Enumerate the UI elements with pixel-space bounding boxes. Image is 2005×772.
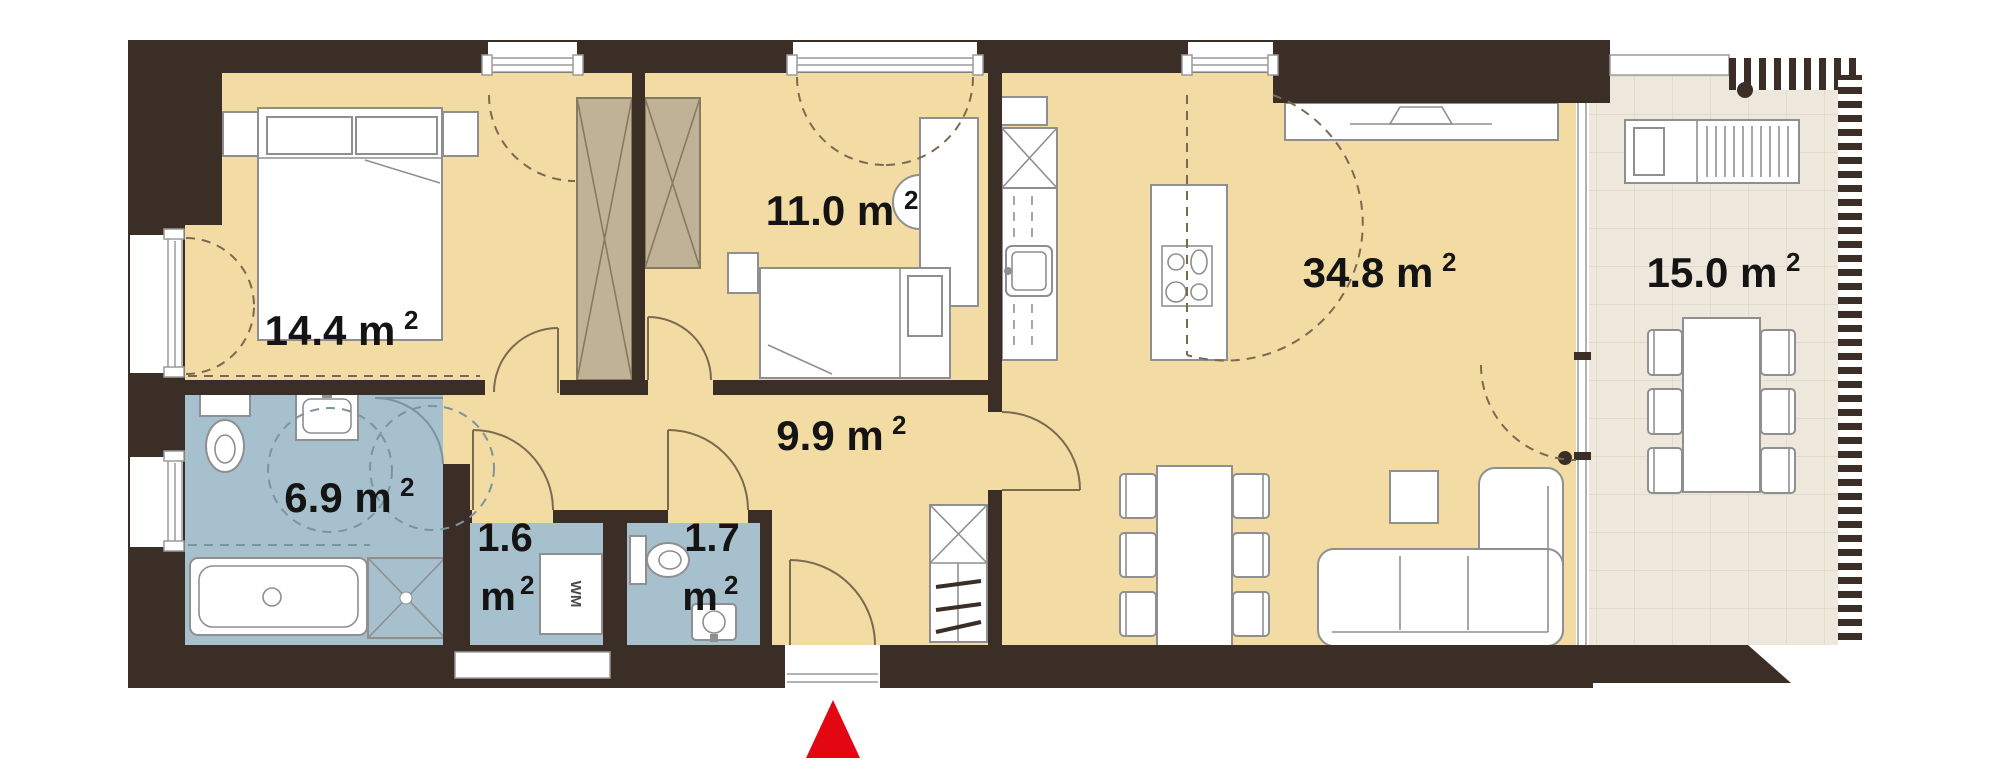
svg-text:2: 2 (520, 570, 534, 600)
shower (368, 558, 445, 638)
terrace-table (1648, 318, 1795, 493)
side-table (1390, 471, 1438, 523)
svg-text:2: 2 (400, 472, 414, 502)
washbasin (296, 388, 358, 440)
dining-table (1120, 466, 1269, 648)
wardrobe-bedroom (577, 98, 632, 380)
svg-text:2: 2 (1786, 247, 1800, 277)
entrance-marker (806, 700, 860, 758)
window-left-bedroom (130, 229, 184, 377)
svg-text:2: 2 (404, 305, 418, 335)
terrace-railing-right (1838, 75, 1862, 645)
kitchen-island (1151, 185, 1227, 360)
hall-cabinet (930, 505, 987, 642)
faucet-icon (1004, 267, 1012, 275)
sun-lounger (1625, 120, 1799, 183)
bathtub (190, 558, 367, 635)
label-bedroom: 14.4 m (265, 307, 396, 354)
wardrobe-child-room (645, 98, 700, 268)
floor-plan-canvas: 14.4 m 2 11.0 m 2 34.8 m 2 15.0 m 2 9.9 … (0, 0, 2005, 772)
svg-text:2: 2 (892, 410, 906, 440)
svg-text:2: 2 (724, 570, 738, 600)
label-wc: 1.7 (684, 516, 740, 560)
double-bed (223, 108, 478, 340)
window-left-bathroom (130, 451, 184, 551)
label-utility: 1.6 (477, 516, 533, 560)
svg-text:2: 2 (904, 185, 918, 215)
label-terrace: 15.0 m (1647, 249, 1778, 296)
wall-counter (1285, 103, 1558, 140)
window-top-living (1182, 42, 1278, 75)
label-hallway: 9.9 m (776, 412, 883, 459)
window-top-bedroom (482, 42, 583, 75)
svg-text:2: 2 (1442, 247, 1456, 277)
window-top-child-room (787, 42, 983, 75)
label-living: 34.8 m (1303, 249, 1434, 296)
entrance-threshold (785, 645, 880, 688)
single-bed (728, 253, 950, 378)
floor-plan: 14.4 m 2 11.0 m 2 34.8 m 2 15.0 m 2 9.9 … (0, 0, 2005, 772)
terrace-post (1737, 82, 1753, 98)
terrace-glass-wall (1574, 103, 1591, 645)
label-washing-machine: WM (567, 581, 584, 608)
terrace-parapet (1610, 55, 1729, 75)
label-child-room: 11.0 m (766, 187, 894, 234)
label-wc-unit: m (682, 575, 718, 619)
label-bathroom: 6.9 m (284, 474, 391, 521)
kitchen-counter (1000, 97, 1057, 360)
label-utility-unit: m (480, 575, 516, 619)
wall-niche (455, 652, 610, 678)
